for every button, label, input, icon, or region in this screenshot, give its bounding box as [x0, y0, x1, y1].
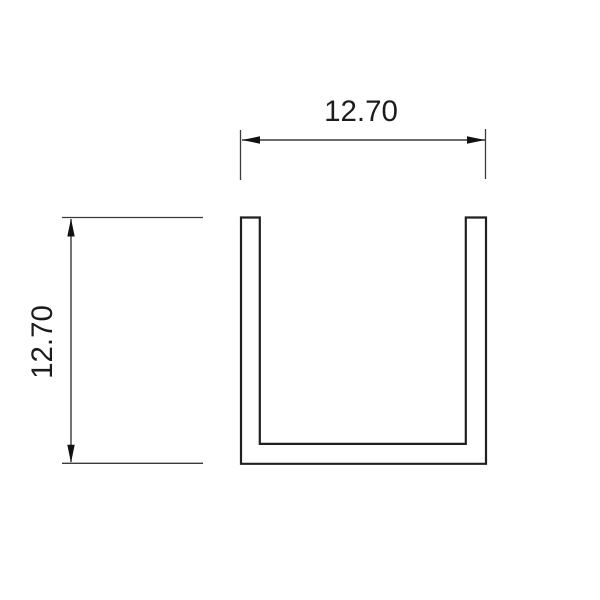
- svg-text:12.70: 12.70: [26, 305, 59, 379]
- svg-text:12.70: 12.70: [324, 95, 398, 128]
